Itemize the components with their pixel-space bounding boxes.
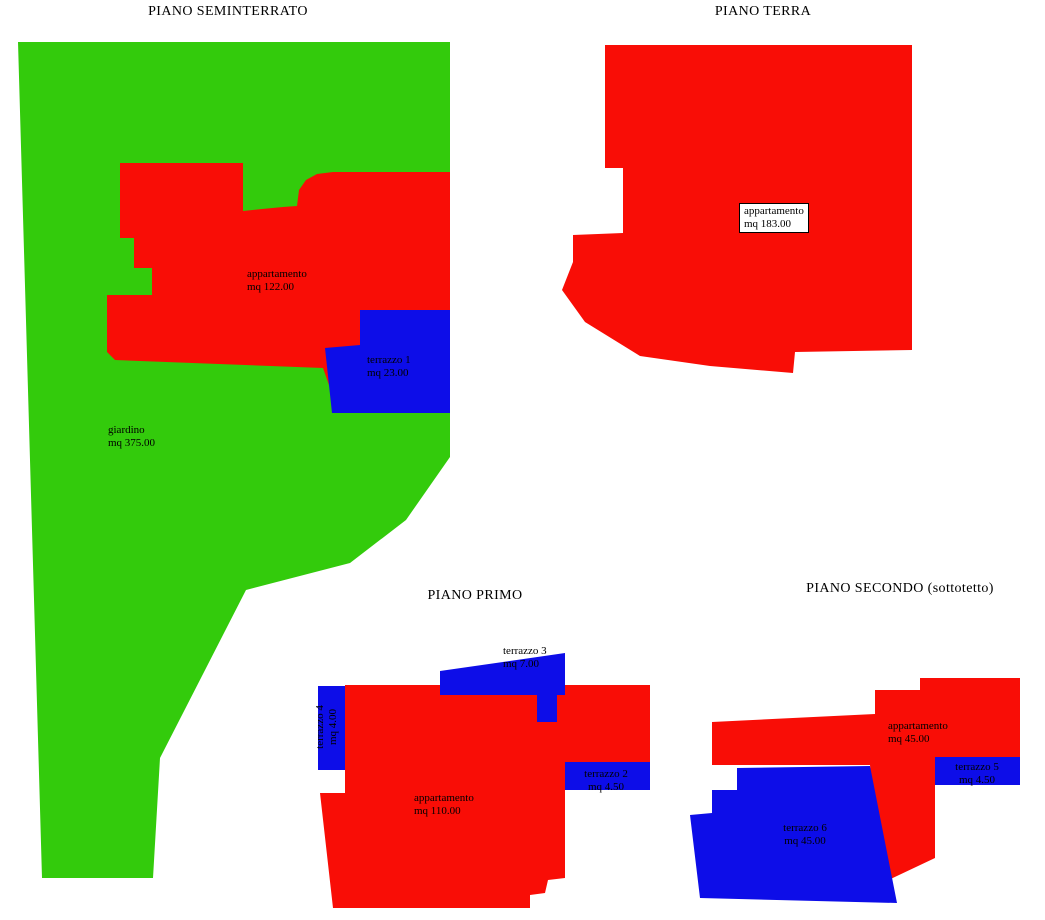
terrace5-name: terrazzo 5 [955, 761, 999, 774]
terrace1-name: terrazzo 1 [367, 354, 411, 367]
primo-apartment-area: mq 110.00 [414, 805, 474, 818]
terrace3-label: terrazzo 3 mq 7.00 [503, 645, 547, 671]
terra-apartment-area: mq 183.00 [744, 218, 804, 231]
terrace2-area: mq 4.50 [584, 781, 628, 794]
title-piano-terra: PIANO TERRA [715, 4, 811, 20]
title-piano-primo: PIANO PRIMO [427, 588, 522, 604]
terrace2-label: terrazzo 2 mq 4.50 [584, 768, 628, 794]
terrace1-area: mq 23.00 [367, 367, 411, 380]
terrace5-area: mq 4.50 [955, 774, 999, 787]
secondo-apartment-label: appartamento mq 45.00 [888, 720, 948, 746]
terrace6-name: terrazzo 6 [783, 822, 827, 835]
terra-apartment-region [562, 45, 912, 373]
secondo-apartment-area: mq 45.00 [888, 733, 948, 746]
seminterrato-apartment-name: appartamento [247, 268, 307, 281]
primo-apartment-label: appartamento mq 110.00 [414, 792, 474, 818]
terrace4-name: terrazzo 4 [314, 705, 327, 749]
terrace5-label: terrazzo 5 mq 4.50 [955, 761, 999, 787]
terrace6-area: mq 45.00 [783, 835, 827, 848]
primo-apartment-name: appartamento [414, 792, 474, 805]
terra-apartment-name: appartamento [744, 205, 804, 218]
floorplan-sheet: PIANO SEMINTERRATO PIANO TERRA PIANO PRI… [0, 0, 1045, 920]
terrace6-label: terrazzo 6 mq 45.00 [783, 822, 827, 848]
primo-apartment-region [320, 685, 650, 908]
floorplan-drawing [0, 0, 1045, 920]
seminterrato-apartment-label: appartamento mq 122.00 [247, 268, 307, 294]
title-piano-secondo: PIANO SECONDO (sottotetto) [806, 581, 994, 597]
terrace1-label: terrazzo 1 mq 23.00 [367, 354, 411, 380]
seminterrato-apartment-area: mq 122.00 [247, 281, 307, 294]
garden-label: giardino mq 375.00 [108, 424, 155, 450]
secondo-apartment-name: appartamento [888, 720, 948, 733]
terrace2-name: terrazzo 2 [584, 768, 628, 781]
terra-apartment-label: appartamento mq 183.00 [739, 203, 809, 233]
garden-name: giardino [108, 424, 155, 437]
garden-area: mq 375.00 [108, 437, 155, 450]
title-piano-seminterrato: PIANO SEMINTERRATO [148, 4, 308, 20]
terrace3-area: mq 7.00 [503, 658, 547, 671]
terrace4-label: terrazzo 4 mq 4.00 [314, 705, 340, 749]
terrace3-name: terrazzo 3 [503, 645, 547, 658]
terrace4-area: mq 4.00 [327, 705, 340, 749]
